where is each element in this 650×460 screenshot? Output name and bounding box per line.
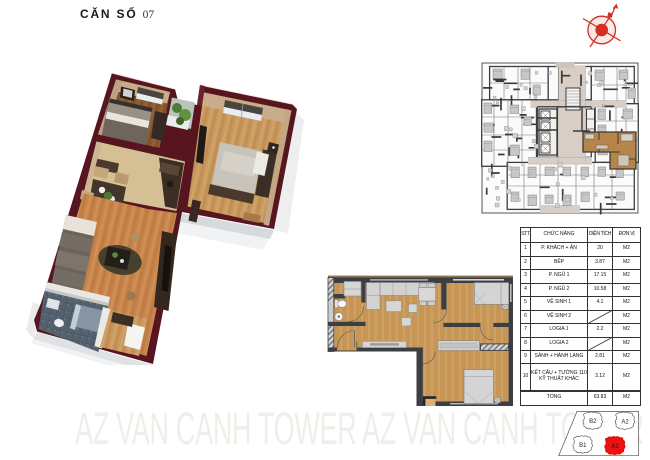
svg-text:A1: A1 xyxy=(611,444,619,450)
svg-text:B2: B2 xyxy=(589,419,597,425)
svg-text:A2: A2 xyxy=(621,419,629,425)
svg-text:B1: B1 xyxy=(579,443,587,449)
